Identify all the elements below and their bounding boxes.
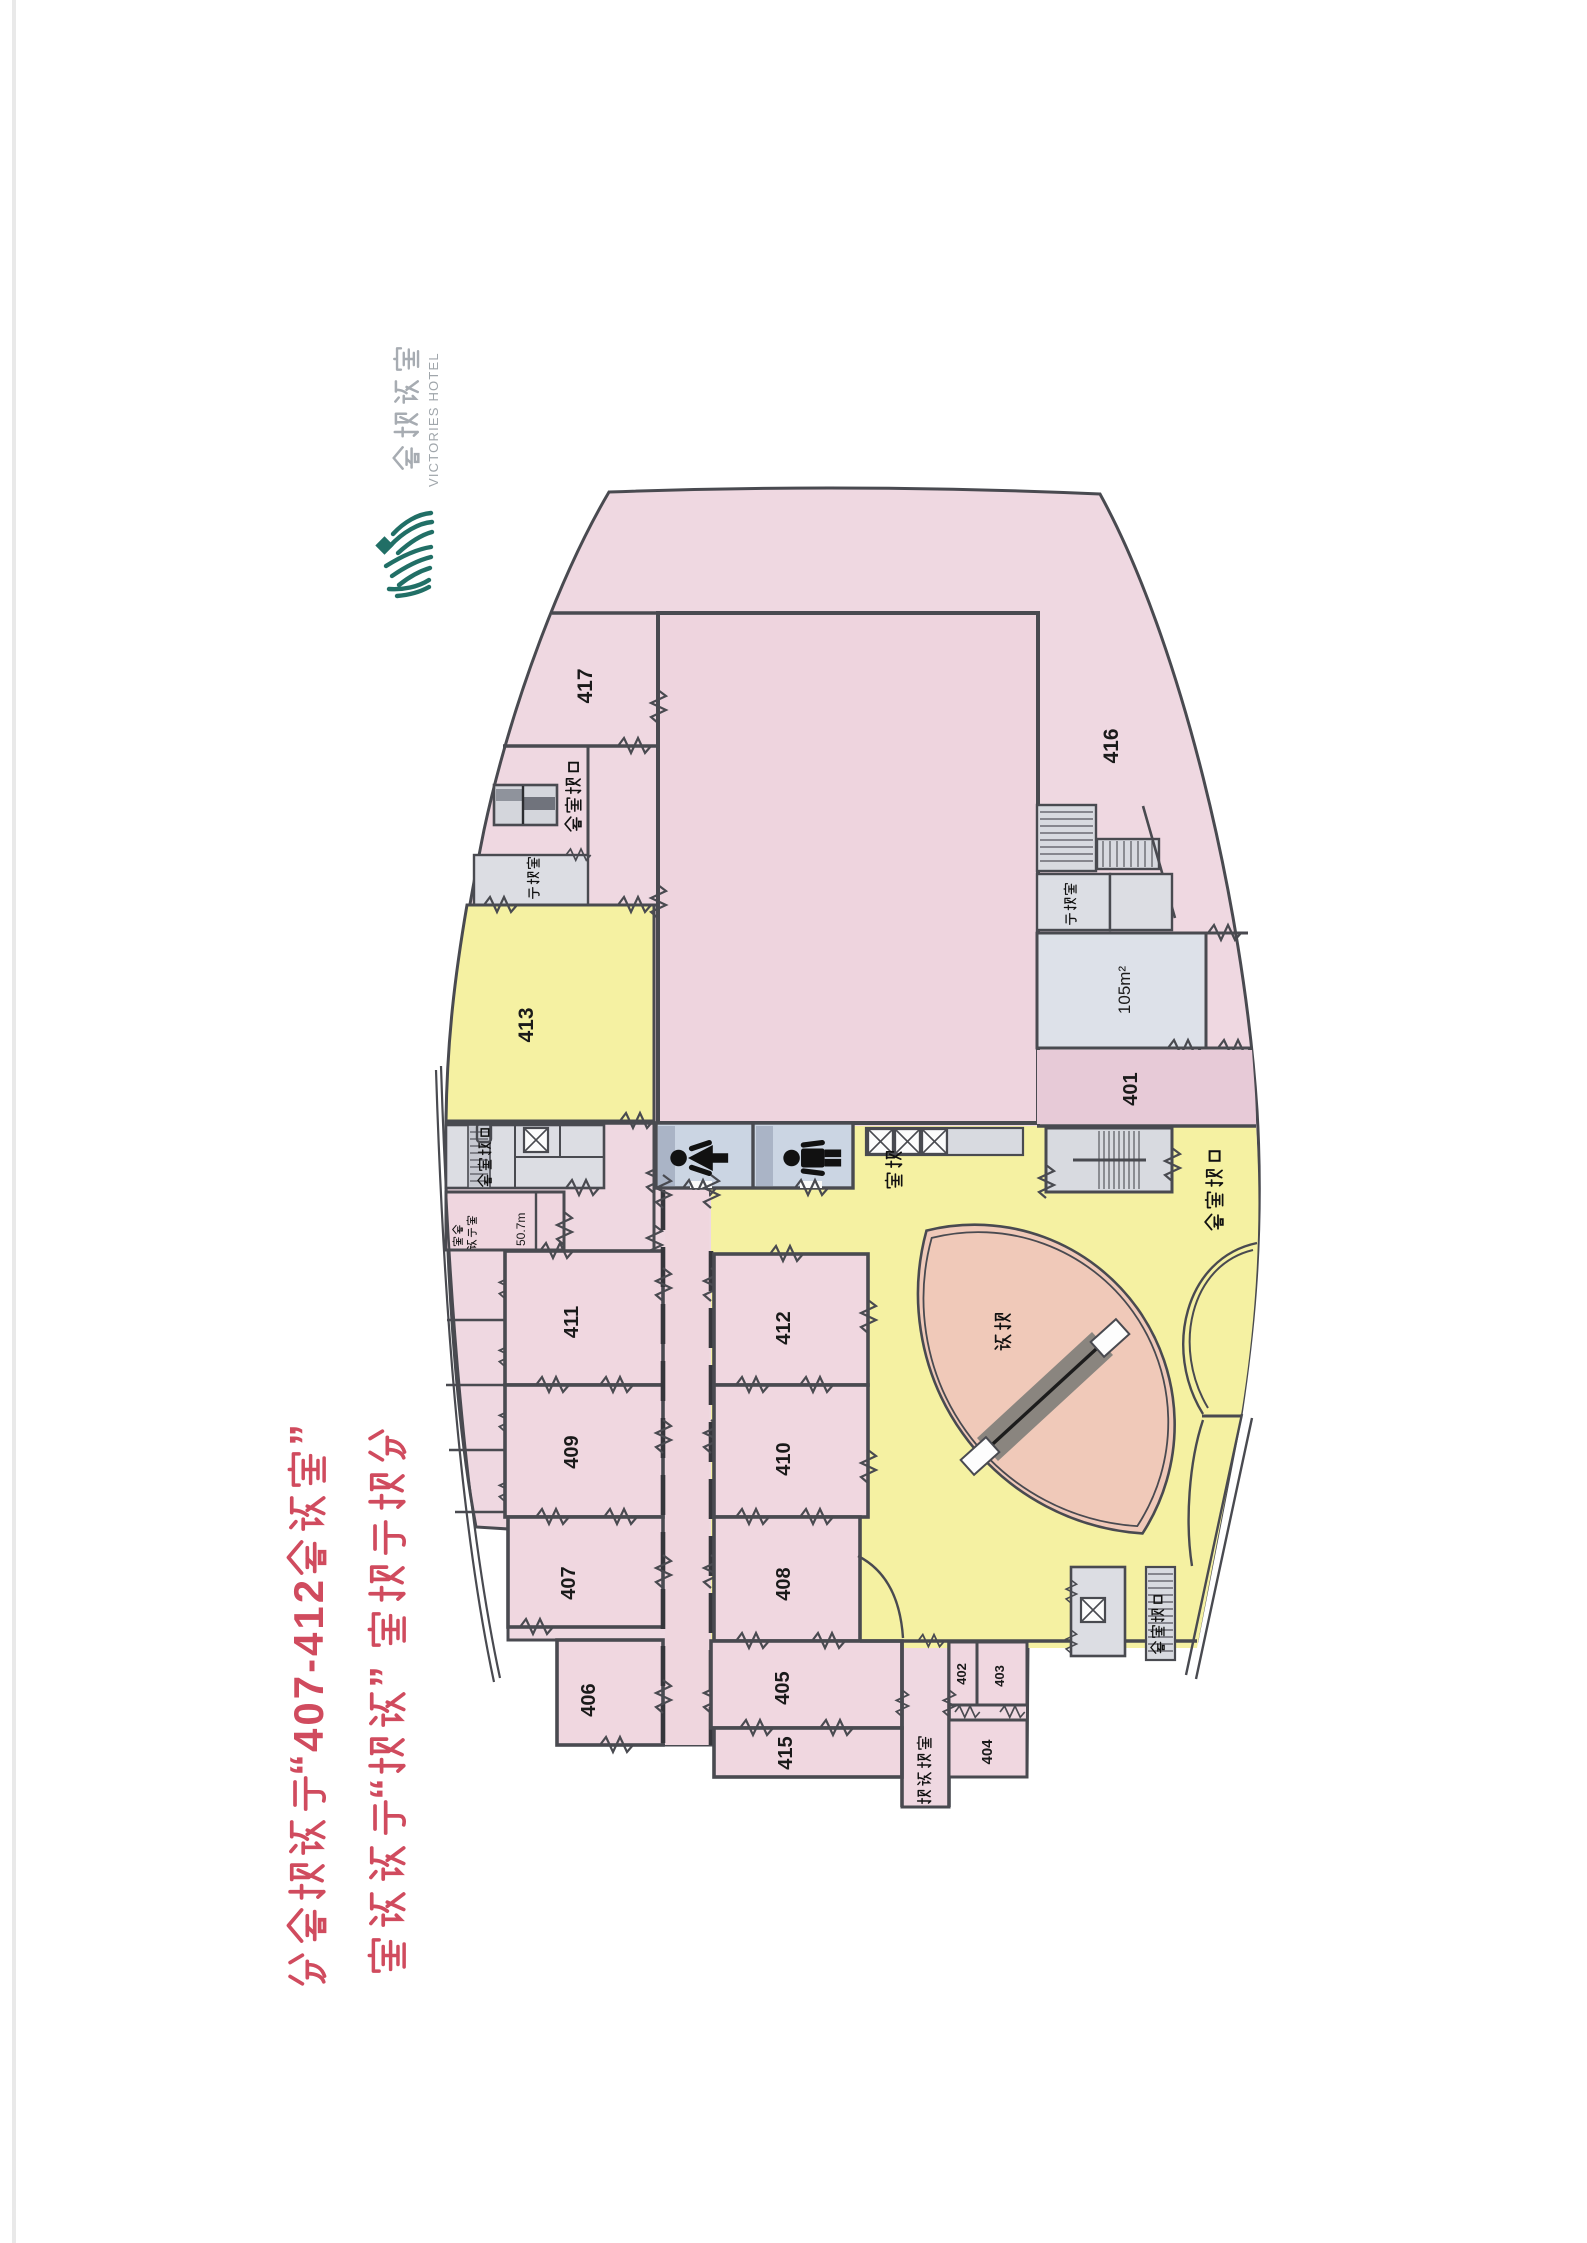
svg-text:“: “ bbox=[361, 1778, 410, 1800]
svg-text:417: 417 bbox=[574, 668, 597, 703]
svg-text:407-412: 407-412 bbox=[285, 1577, 332, 1752]
svg-text:105m²: 105m² bbox=[1115, 966, 1134, 1015]
svg-text:401: 401 bbox=[1120, 1072, 1142, 1105]
svg-text:”: ” bbox=[361, 1666, 410, 1688]
svg-text:50.7m: 50.7m bbox=[514, 1213, 528, 1246]
svg-text:411: 411 bbox=[561, 1306, 583, 1338]
svg-text:415: 415 bbox=[775, 1736, 797, 1769]
svg-text:403: 403 bbox=[992, 1665, 1007, 1687]
svg-text:402: 402 bbox=[954, 1663, 969, 1685]
svg-text:408: 408 bbox=[773, 1567, 795, 1600]
svg-text:406: 406 bbox=[578, 1683, 600, 1716]
svg-text:412: 412 bbox=[773, 1311, 795, 1344]
svg-text:409: 409 bbox=[561, 1435, 583, 1468]
svg-text:407: 407 bbox=[558, 1566, 580, 1599]
svg-text:413: 413 bbox=[515, 1007, 538, 1042]
svg-text:416: 416 bbox=[1100, 728, 1123, 763]
svg-text:405: 405 bbox=[772, 1671, 794, 1704]
svg-text:VICTORIES HOTEL: VICTORIES HOTEL bbox=[426, 352, 441, 487]
svg-text:410: 410 bbox=[773, 1442, 795, 1475]
svg-text:404: 404 bbox=[979, 1739, 996, 1765]
svg-text:“: “ bbox=[281, 1754, 330, 1776]
svg-text:”: ” bbox=[281, 1424, 330, 1446]
